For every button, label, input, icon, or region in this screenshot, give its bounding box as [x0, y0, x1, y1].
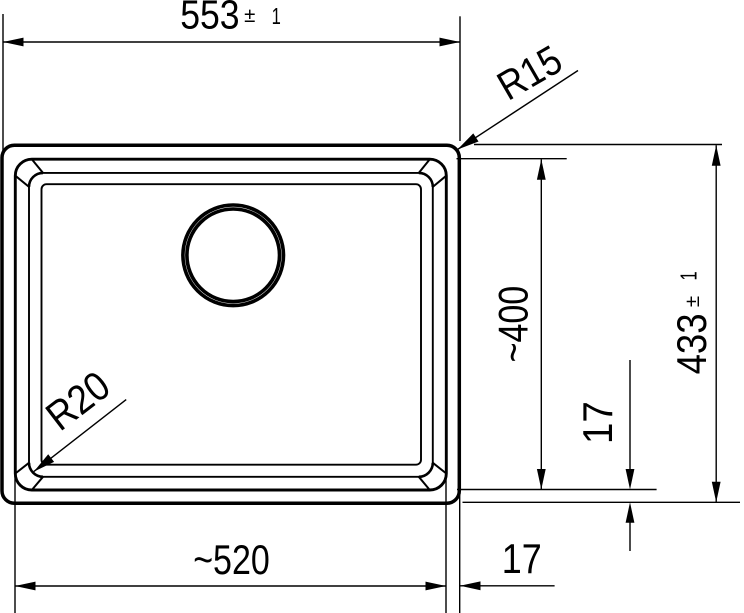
svg-text:~400: ~400 [490, 286, 537, 363]
svg-text:~520: ~520 [193, 536, 270, 583]
svg-text:17: 17 [502, 535, 542, 582]
svg-text:±: ± [244, 4, 255, 27]
svg-text:433: 433 [668, 314, 715, 375]
svg-text:1: 1 [676, 271, 702, 280]
svg-text:±: ± [681, 296, 704, 307]
svg-text:553: 553 [180, 0, 239, 38]
svg-text:1: 1 [272, 3, 281, 29]
svg-text:17: 17 [574, 401, 621, 444]
